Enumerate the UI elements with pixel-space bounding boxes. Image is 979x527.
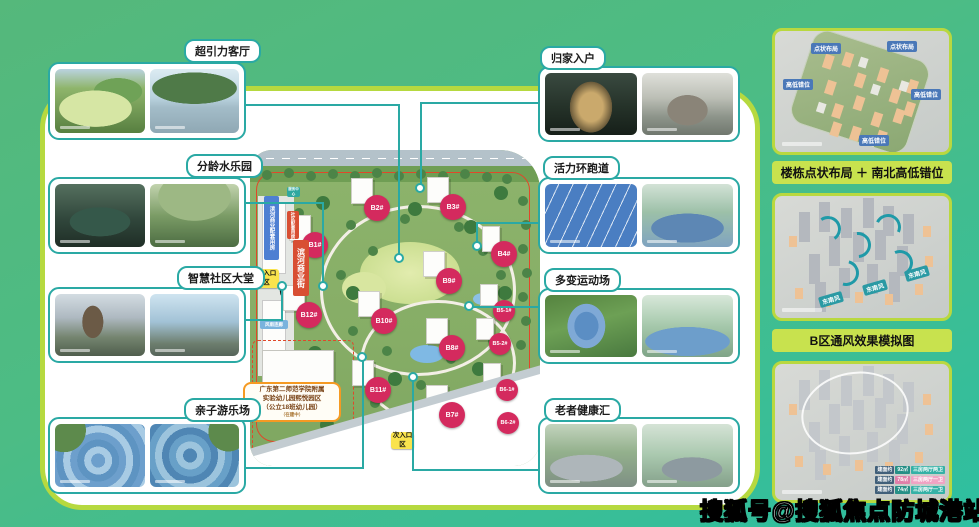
callout-photos-vitality-running-track [538, 177, 740, 254]
callout-label-versatile-sports-field: 多变运动场 [544, 268, 621, 292]
photo-playground-spiral [150, 424, 240, 487]
map-node [318, 281, 328, 291]
building-badge: B8# [439, 335, 465, 361]
photo-blue-track [545, 184, 637, 247]
photo-lobby-entrance [150, 294, 240, 356]
secondary-entrance-label: 次入口区 [391, 432, 414, 449]
map-node [357, 352, 367, 362]
legend-area: 92㎡ [895, 466, 910, 474]
wind-arrow [871, 210, 904, 243]
tag-southeast-wind: 东南风 [818, 291, 844, 308]
highlight-ring [795, 363, 916, 463]
callout-photos-elder-health-hub [538, 417, 740, 494]
community-facility-sign: 社区配套用房 [287, 211, 299, 239]
connector-line [477, 222, 538, 224]
photo-entry-day [642, 73, 734, 135]
commercial-street-sign: 滨河商业街 [293, 240, 309, 296]
map-node [472, 241, 482, 251]
tag-height-offset: 高低错位 [859, 135, 889, 146]
connector-line [420, 102, 422, 190]
photo-community-gate [55, 294, 145, 356]
connector-line [246, 202, 324, 204]
map-node [408, 372, 418, 382]
tag-point-layout: 点状布局 [887, 41, 917, 52]
callout-photos-smart-community-lobby [48, 287, 246, 363]
connector-line [398, 104, 400, 260]
legend-type: 三房两厅两卫 [911, 466, 945, 474]
map-node [464, 301, 474, 311]
callout-photos-versatile-sports-field [538, 288, 740, 364]
connector-line [469, 306, 538, 308]
tag-point-layout: 点状布局 [811, 43, 841, 54]
kindergarten-line1: 广东第二师范学院附属 [246, 386, 338, 395]
connector-line [246, 319, 283, 321]
map-node [415, 183, 425, 193]
photo-water-courtyard [150, 184, 240, 247]
building-badge: B6-1# [496, 379, 518, 401]
connector-line [420, 102, 538, 104]
tag-height-offset: 高低错位 [783, 79, 813, 90]
callout-photos-parent-child-playground [48, 417, 246, 494]
caption-wind-simulation: B区通风效果模拟图 [772, 329, 952, 352]
corridor-sign: 风雨连廊 [260, 320, 288, 329]
tag-southeast-wind: 东南风 [862, 279, 888, 296]
photo-elder-seating [642, 424, 734, 487]
lowrise-stamps [775, 364, 783, 375]
callout-label-elder-health-hub: 老者健康汇 [544, 398, 621, 422]
building-badge: B4# [491, 241, 517, 267]
tag-height-offset: 高低错位 [911, 89, 941, 100]
unit-legend: 建面约 92㎡ 三房两厅两卫 建面约 78㎡ 三房两厅一卫 建面约 74㎡ 三房… [875, 466, 945, 494]
service-center-sign: 服务中心 [287, 187, 300, 197]
photo-park-aerial [55, 69, 145, 133]
building-badge: B7# [439, 402, 465, 428]
callout-label-vitality-running-track: 活力环跑道 [543, 156, 620, 180]
wind-arrow [813, 214, 843, 244]
callout-label-super-gravity-living-room: 超引力客厅 [184, 39, 261, 63]
wind-arrow [828, 255, 864, 291]
lowrise-stamps [775, 196, 783, 207]
connector-line [281, 286, 283, 321]
layout-render-card: 点状布局 点状布局 高低错位 高低错位 高低错位 [772, 28, 952, 155]
legend-prefix: 建面约 [875, 476, 894, 484]
callout-photos-age-split-water-park [48, 177, 246, 254]
photo-elder-path [545, 424, 637, 487]
callout-photos-super-gravity-living-room [48, 62, 246, 140]
riverside-commercial-sign: 滨河商业配套用房 [264, 196, 279, 260]
unit-mix-render-card: 建面约 92㎡ 三房两厅两卫 建面约 78㎡ 三房两厅一卫 建面约 74㎡ 三房… [772, 361, 952, 503]
connector-line [246, 467, 364, 469]
photo-lakeside-plaza [150, 69, 240, 133]
photo-field-ground [642, 295, 734, 357]
legend-area: 78㎡ [895, 476, 910, 484]
connector-line [362, 357, 364, 469]
photo-winding-field [545, 295, 637, 357]
building-badge: B3# [440, 194, 466, 220]
connector-line [322, 202, 324, 288]
building-badge: B6-2# [497, 412, 519, 434]
caption-layout: 楼栋点状布局 ＋ 南北高低错位 [772, 161, 952, 184]
photo-sports-court [642, 184, 734, 247]
watermark: 搜狐号@搜狐焦点防城港站 [700, 492, 979, 526]
callout-label-parent-child-playground: 亲子游乐场 [184, 398, 261, 422]
building-badge: B12# [296, 302, 322, 328]
kindergarten-line2: 实验幼儿园熙悦园区 [246, 395, 338, 404]
callout-label-homecoming-entry: 归家入户 [540, 46, 606, 70]
legend-prefix: 建面约 [875, 466, 894, 474]
promo-page: B1# B2# B3# B4# B9# B10# B12# B5-1# B5-2… [0, 0, 979, 527]
legend-row: 建面约 78㎡ 三房两厅一卫 [875, 476, 945, 484]
callout-label-smart-community-lobby: 智慧社区大堂 [177, 266, 265, 290]
building-badge: B10# [371, 308, 397, 334]
wind-simulation-card: 东南风 东南风 东南风 [772, 193, 952, 321]
photo-water-garden-night [55, 184, 145, 247]
building-badge: B9# [436, 268, 462, 294]
building-badge: B5-2# [489, 333, 511, 355]
connector-line [413, 469, 538, 471]
building-badge: B11# [365, 377, 391, 403]
connector-line [246, 104, 400, 106]
legend-type: 三房两厅一卫 [911, 476, 945, 484]
map-node [277, 281, 287, 291]
photo-entry-night [545, 73, 637, 135]
callout-photos-homecoming-entry [538, 66, 740, 142]
map-node [394, 253, 404, 263]
callout-label-age-split-water-park: 分龄水乐园 [186, 154, 263, 178]
legend-row: 建面约 92㎡ 三房两厅两卫 [875, 466, 945, 474]
building-badge: B2# [364, 195, 390, 221]
connector-line [412, 377, 414, 471]
photo-playground-rings [55, 424, 145, 487]
wind-arrow [840, 227, 877, 264]
building-badge: B5-1# [493, 300, 515, 322]
